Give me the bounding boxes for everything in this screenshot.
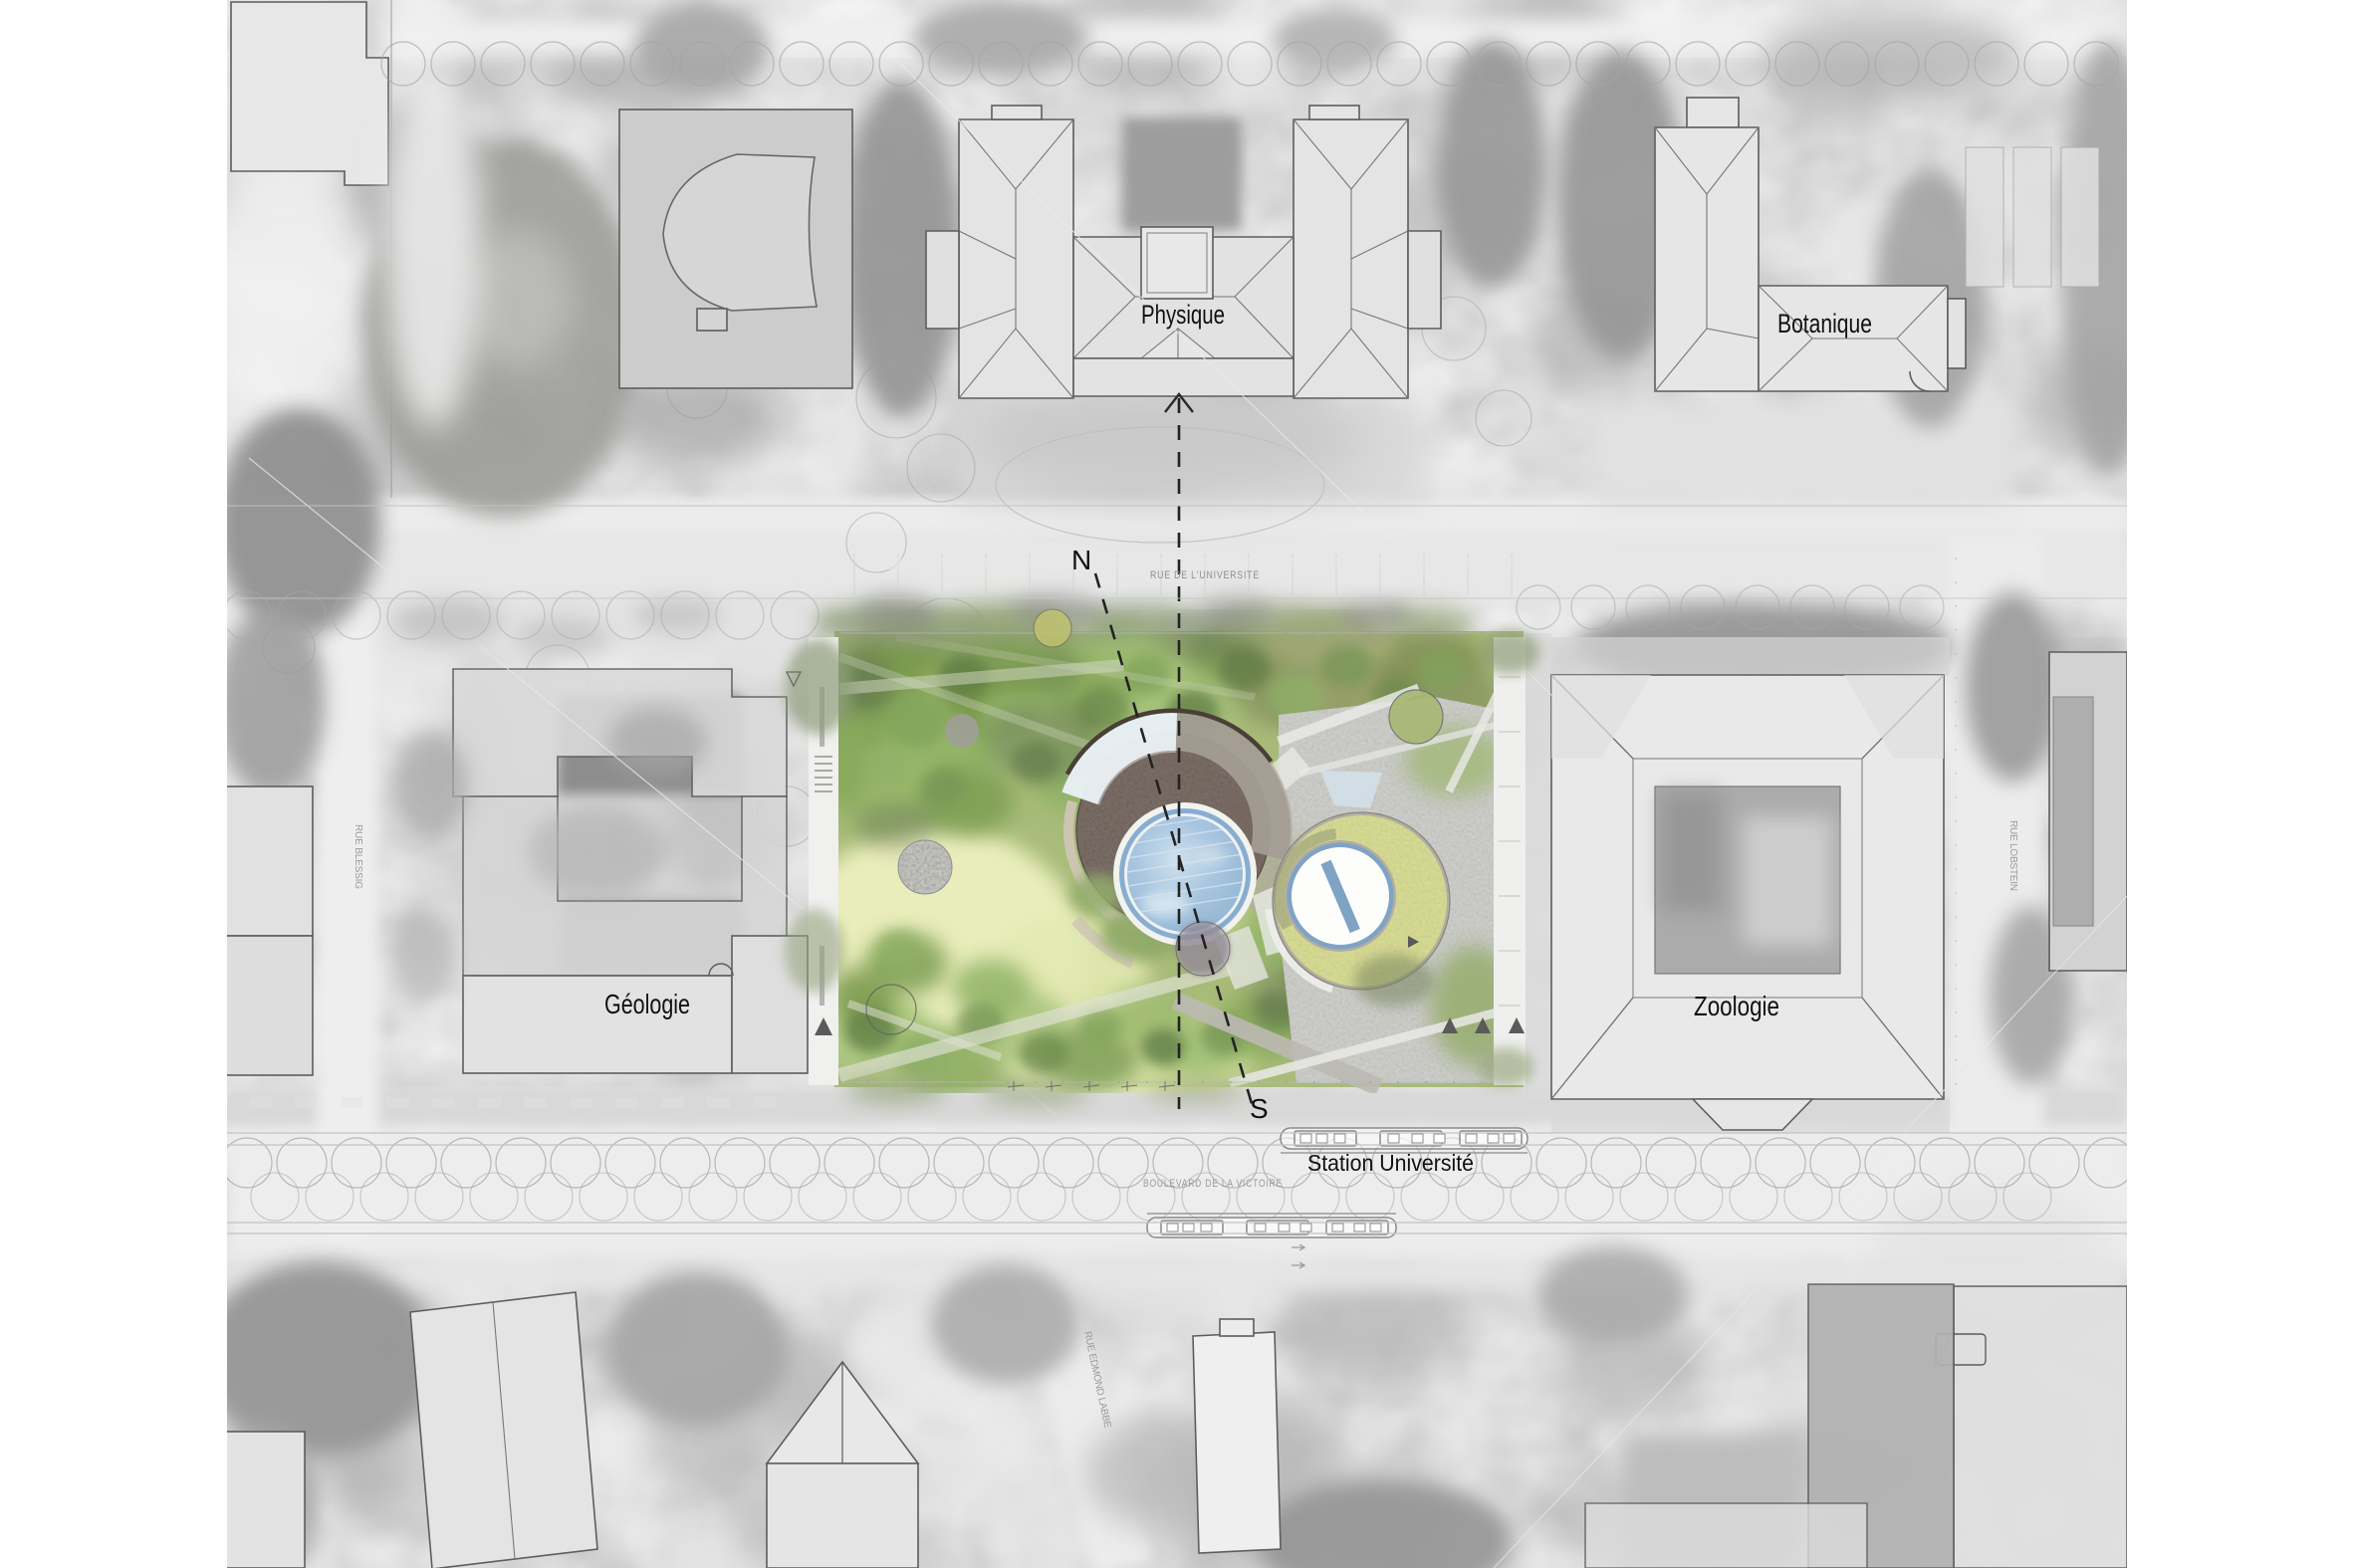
svg-text:N: N [1071, 545, 1091, 575]
svg-text:Station Université: Station Université [1307, 1150, 1474, 1176]
svg-text:Physique: Physique [1141, 300, 1225, 330]
svg-text:BOULEVARD DE LA VICTOIRE: BOULEVARD DE LA VICTOIRE [1143, 1178, 1283, 1190]
svg-text:RUE DE L'UNIVERSITE: RUE DE L'UNIVERSITE [1150, 569, 1260, 581]
svg-text:RUE LOBSTEIN: RUE LOBSTEIN [2007, 820, 2018, 892]
svg-text:Botanique: Botanique [1777, 309, 1872, 338]
svg-text:Géologie: Géologie [604, 989, 690, 1019]
svg-text:S: S [1250, 1093, 1269, 1124]
svg-text:Zoologie: Zoologie [1694, 991, 1779, 1021]
svg-text:RUE BLESSIG: RUE BLESSIG [353, 824, 363, 890]
